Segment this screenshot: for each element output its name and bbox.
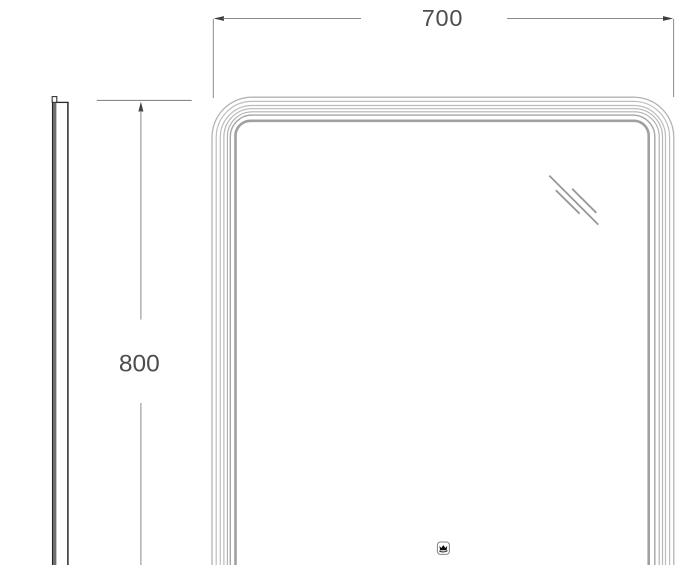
svg-text:700: 700 <box>422 5 464 31</box>
svg-text:800: 800 <box>119 351 160 378</box>
